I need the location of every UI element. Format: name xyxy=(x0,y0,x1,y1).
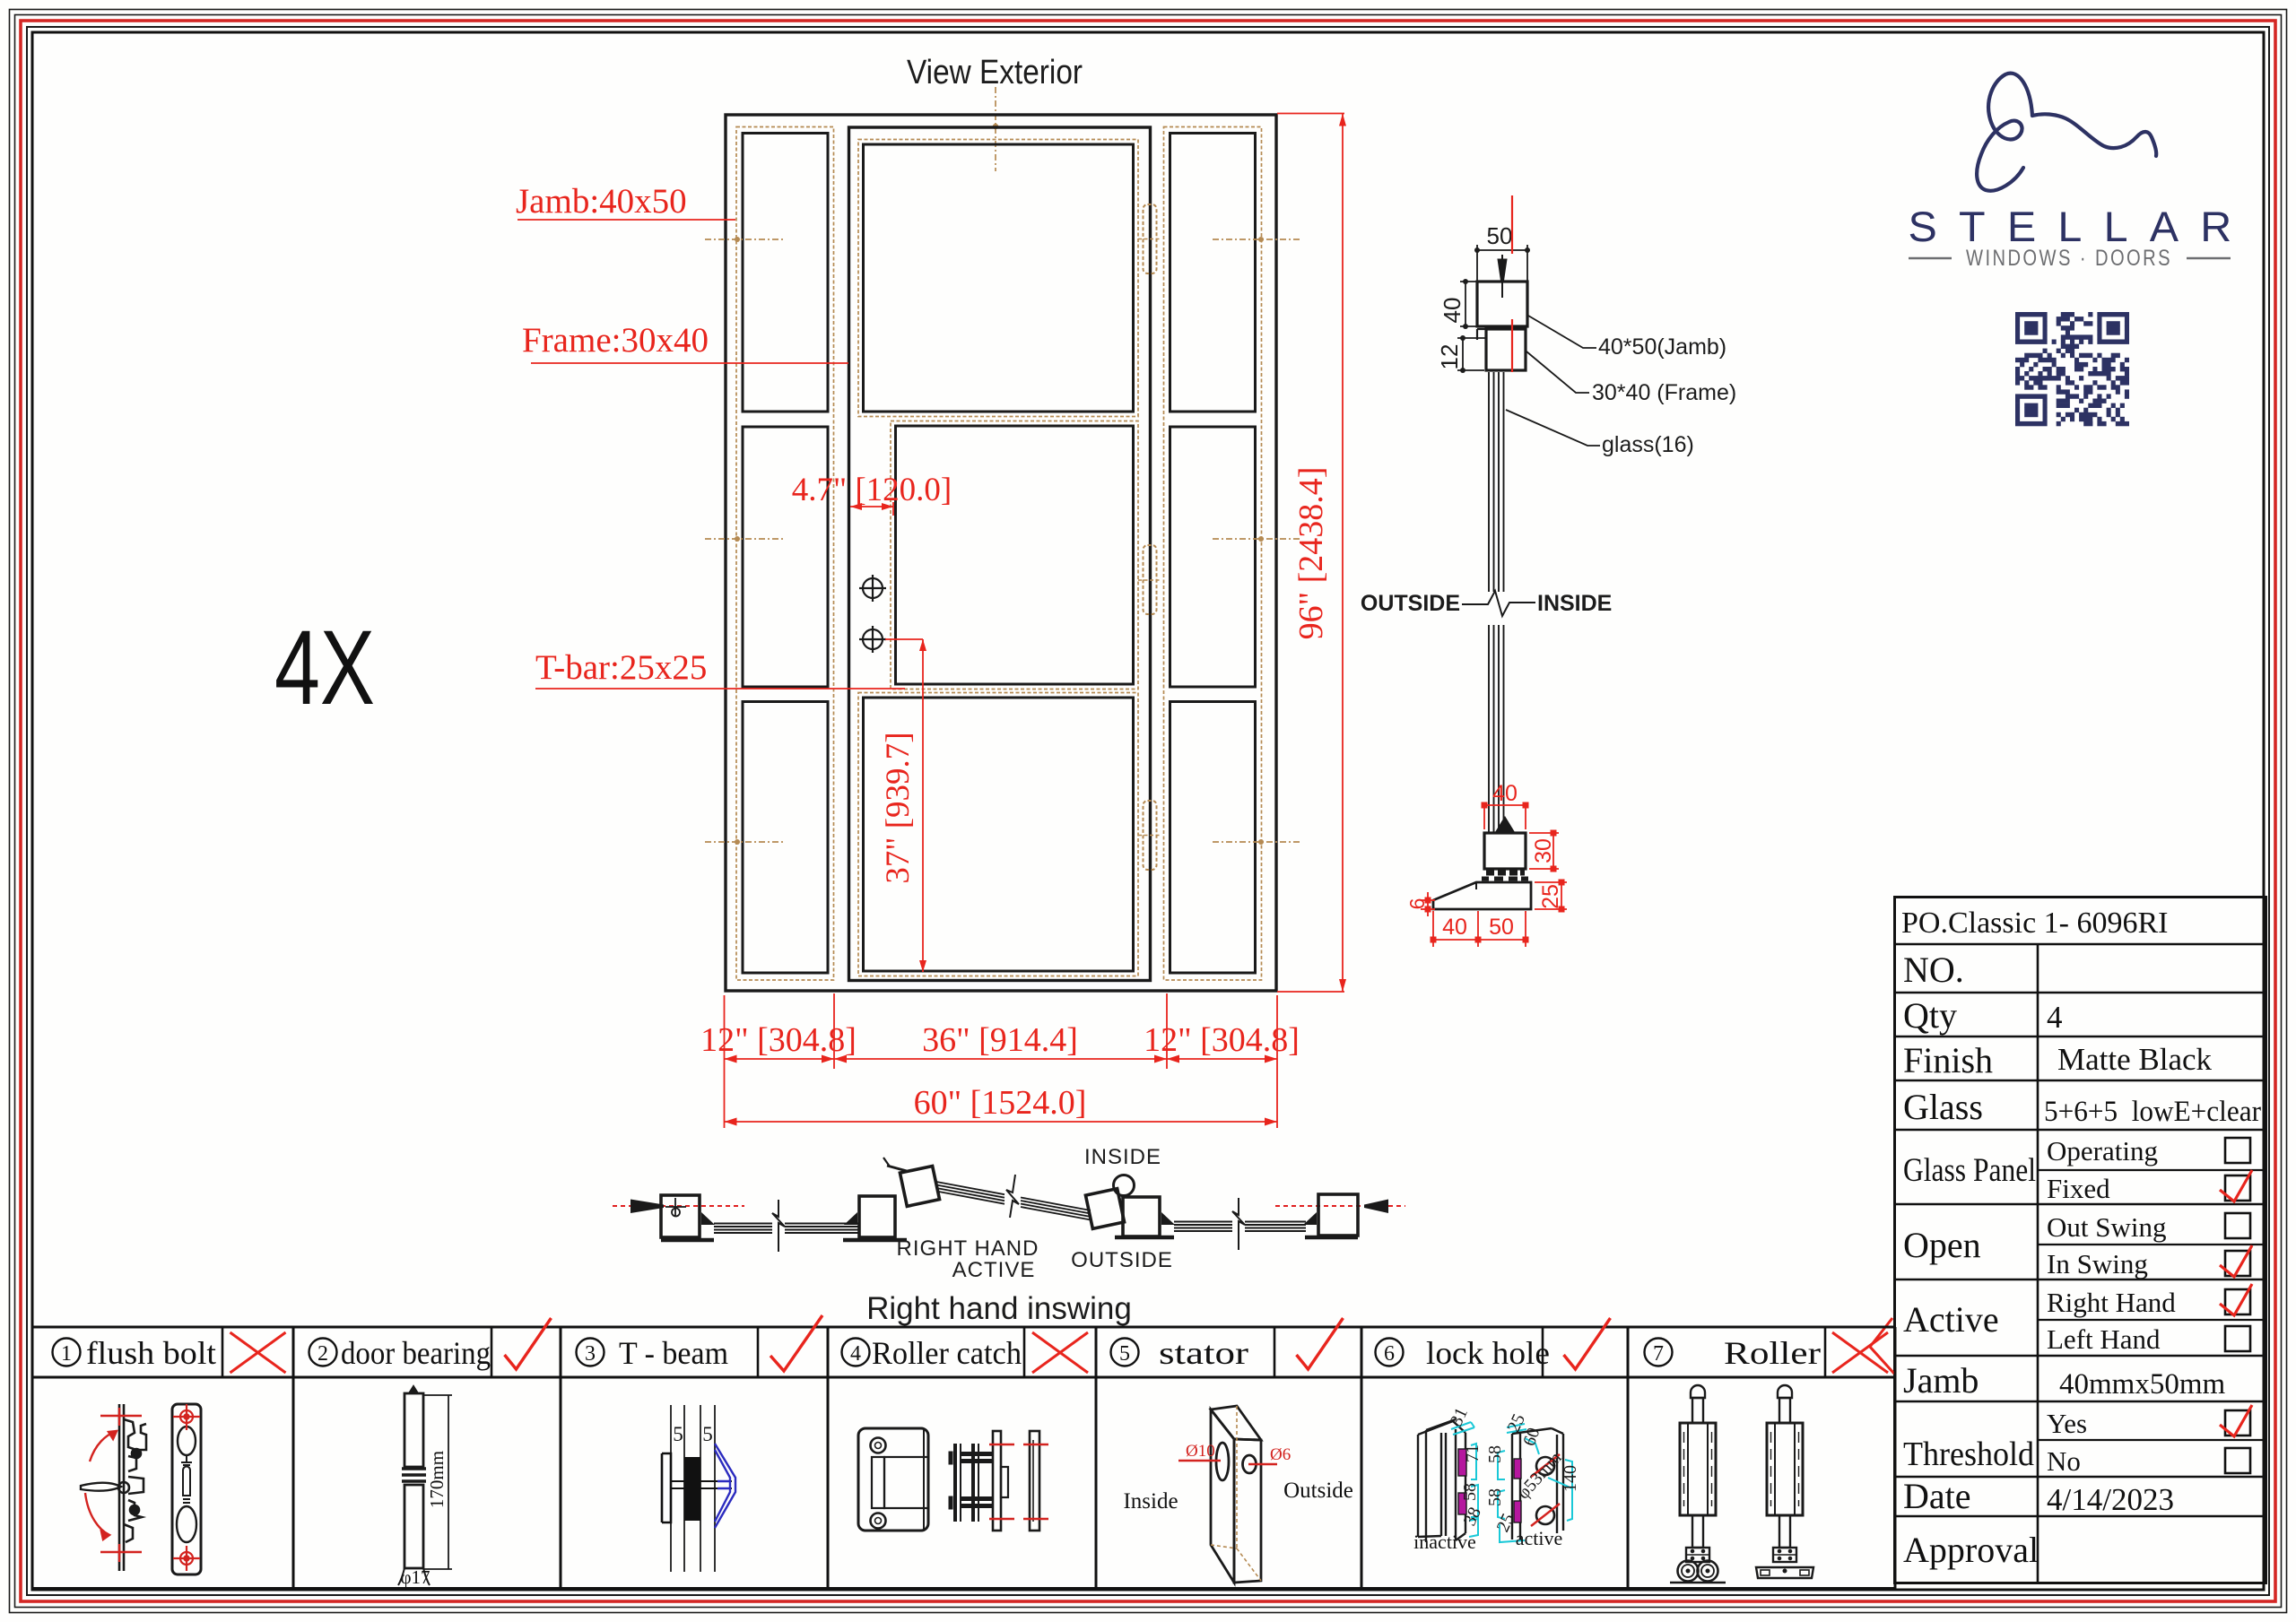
svg-text:Approval: Approval xyxy=(1903,1530,2039,1570)
svg-text:4: 4 xyxy=(2047,1000,2063,1035)
svg-text:View Exterior: View Exterior xyxy=(907,54,1083,91)
svg-text:2: 2 xyxy=(317,1342,328,1366)
svg-text:φ17: φ17 xyxy=(400,1566,430,1588)
svg-text:Yes: Yes xyxy=(2047,1408,2087,1439)
svg-text:Roller catch: Roller catch xyxy=(872,1335,1022,1371)
svg-text:Jamb: Jamb xyxy=(1903,1360,1979,1401)
svg-text:Threshold: Threshold xyxy=(1903,1436,2034,1473)
svg-text:Finish: Finish xyxy=(1903,1040,1993,1080)
svg-text:STELLAR: STELLAR xyxy=(1909,203,2254,250)
svg-text:PO.Classic 1- 6096RI: PO.Classic 1- 6096RI xyxy=(1901,906,2169,940)
svg-text:58: 58 xyxy=(1485,1488,1505,1506)
svg-text:INSIDE: INSIDE xyxy=(1084,1145,1161,1169)
svg-text:37" [939.7]: 37" [939.7] xyxy=(880,732,917,883)
svg-text:Date: Date xyxy=(1903,1476,1971,1516)
svg-text:25: 25 xyxy=(1538,884,1563,909)
svg-text:Glass: Glass xyxy=(1903,1087,1983,1127)
svg-text:58: 58 xyxy=(1460,1483,1480,1501)
svg-text:60" [1524.0]: 60" [1524.0] xyxy=(914,1084,1087,1122)
svg-text:OUTSIDE: OUTSIDE xyxy=(1071,1248,1173,1272)
svg-text:4X: 4X xyxy=(274,609,375,727)
svg-text:Roller: Roller xyxy=(1724,1335,1821,1371)
svg-text:50: 50 xyxy=(1487,222,1513,249)
svg-text:glass(16): glass(16) xyxy=(1602,432,1694,457)
svg-text:Inside: Inside xyxy=(1123,1489,1178,1514)
svg-text:4.7" [120.0]: 4.7" [120.0] xyxy=(792,472,952,508)
svg-text:stator: stator xyxy=(1159,1335,1248,1371)
svg-text:NO.: NO. xyxy=(1903,950,1964,990)
svg-text:Left Hand: Left Hand xyxy=(2047,1323,2161,1355)
svg-text:40: 40 xyxy=(1492,781,1518,806)
svg-text:lock hole: lock hole xyxy=(1426,1335,1550,1371)
svg-text:5: 5 xyxy=(702,1423,713,1445)
svg-text:40: 40 xyxy=(1442,915,1467,940)
svg-text:INSIDE: INSIDE xyxy=(1537,591,1612,616)
svg-text:7: 7 xyxy=(1653,1342,1664,1366)
svg-text:40mmx50mm: 40mmx50mm xyxy=(2059,1368,2226,1401)
svg-text:36" [914.4]: 36" [914.4] xyxy=(922,1021,1078,1059)
svg-text:140: 140 xyxy=(1561,1465,1580,1492)
svg-text:Qty: Qty xyxy=(1903,995,1957,1036)
svg-text:Frame:30x40: Frame:30x40 xyxy=(522,321,709,360)
svg-text:flush bolt: flush bolt xyxy=(86,1335,216,1371)
svg-text:Open: Open xyxy=(1903,1225,1981,1265)
svg-text:OUTSIDE: OUTSIDE xyxy=(1361,591,1460,616)
svg-text:5: 5 xyxy=(673,1423,683,1445)
svg-text:Fixed: Fixed xyxy=(2047,1173,2110,1204)
svg-text:3: 3 xyxy=(585,1342,596,1366)
svg-text:Matte Black: Matte Black xyxy=(2057,1042,2213,1077)
svg-text:96" [2438.4]: 96" [2438.4] xyxy=(1292,467,1330,640)
svg-text:30: 30 xyxy=(1531,838,1556,863)
svg-text:50: 50 xyxy=(1489,915,1514,940)
svg-text:door bearing: door bearing xyxy=(341,1335,491,1371)
svg-text:active: active xyxy=(1516,1527,1563,1549)
svg-text:T-bar:25x25: T-bar:25x25 xyxy=(535,648,707,687)
svg-text:12: 12 xyxy=(1436,344,1463,370)
svg-text:4/14/2023: 4/14/2023 xyxy=(2047,1482,2174,1517)
svg-text:Active: Active xyxy=(1903,1299,1999,1340)
svg-text:RIGHT HAND: RIGHT HAND xyxy=(897,1236,1039,1261)
svg-text:Ø10: Ø10 xyxy=(1186,1442,1215,1461)
svg-text:5: 5 xyxy=(1119,1342,1130,1366)
svg-text:170mm: 170mm xyxy=(426,1451,448,1508)
svg-text:1: 1 xyxy=(61,1342,72,1366)
svg-text:Right Hand: Right Hand xyxy=(2047,1287,2176,1318)
svg-text:WINDOWS · DOORS: WINDOWS · DOORS xyxy=(1966,246,2172,271)
svg-text:Outside: Outside xyxy=(1283,1479,1353,1503)
svg-text:Glass Panel: Glass Panel xyxy=(1903,1152,2036,1189)
svg-text:58: 58 xyxy=(1485,1445,1505,1463)
svg-text:Ø6: Ø6 xyxy=(1270,1445,1291,1464)
svg-text:No: No xyxy=(2047,1445,2081,1477)
svg-text:ACTIVE: ACTIVE xyxy=(952,1258,1036,1282)
svg-text:Jamb:40x50: Jamb:40x50 xyxy=(516,182,687,221)
svg-text:6: 6 xyxy=(1384,1342,1395,1366)
svg-text:Right hand inswing: Right hand inswing xyxy=(866,1291,1132,1326)
svg-text:30*40 (Frame): 30*40 (Frame) xyxy=(1592,380,1736,405)
svg-text:40: 40 xyxy=(1439,298,1465,324)
svg-text:71: 71 xyxy=(1463,1444,1483,1462)
svg-text:5+6+5 lowE+clear: 5+6+5 lowE+clear xyxy=(2044,1096,2261,1128)
svg-text:40*50(Jamb): 40*50(Jamb) xyxy=(1598,334,1726,360)
svg-text:Operating: Operating xyxy=(2047,1135,2158,1167)
svg-text:inactive: inactive xyxy=(1413,1531,1476,1553)
svg-text:4: 4 xyxy=(850,1342,861,1366)
svg-text:Out Swing: Out Swing xyxy=(2047,1211,2167,1243)
svg-text:In Swing: In Swing xyxy=(2047,1248,2148,1279)
svg-text:T - beam: T - beam xyxy=(619,1335,728,1371)
